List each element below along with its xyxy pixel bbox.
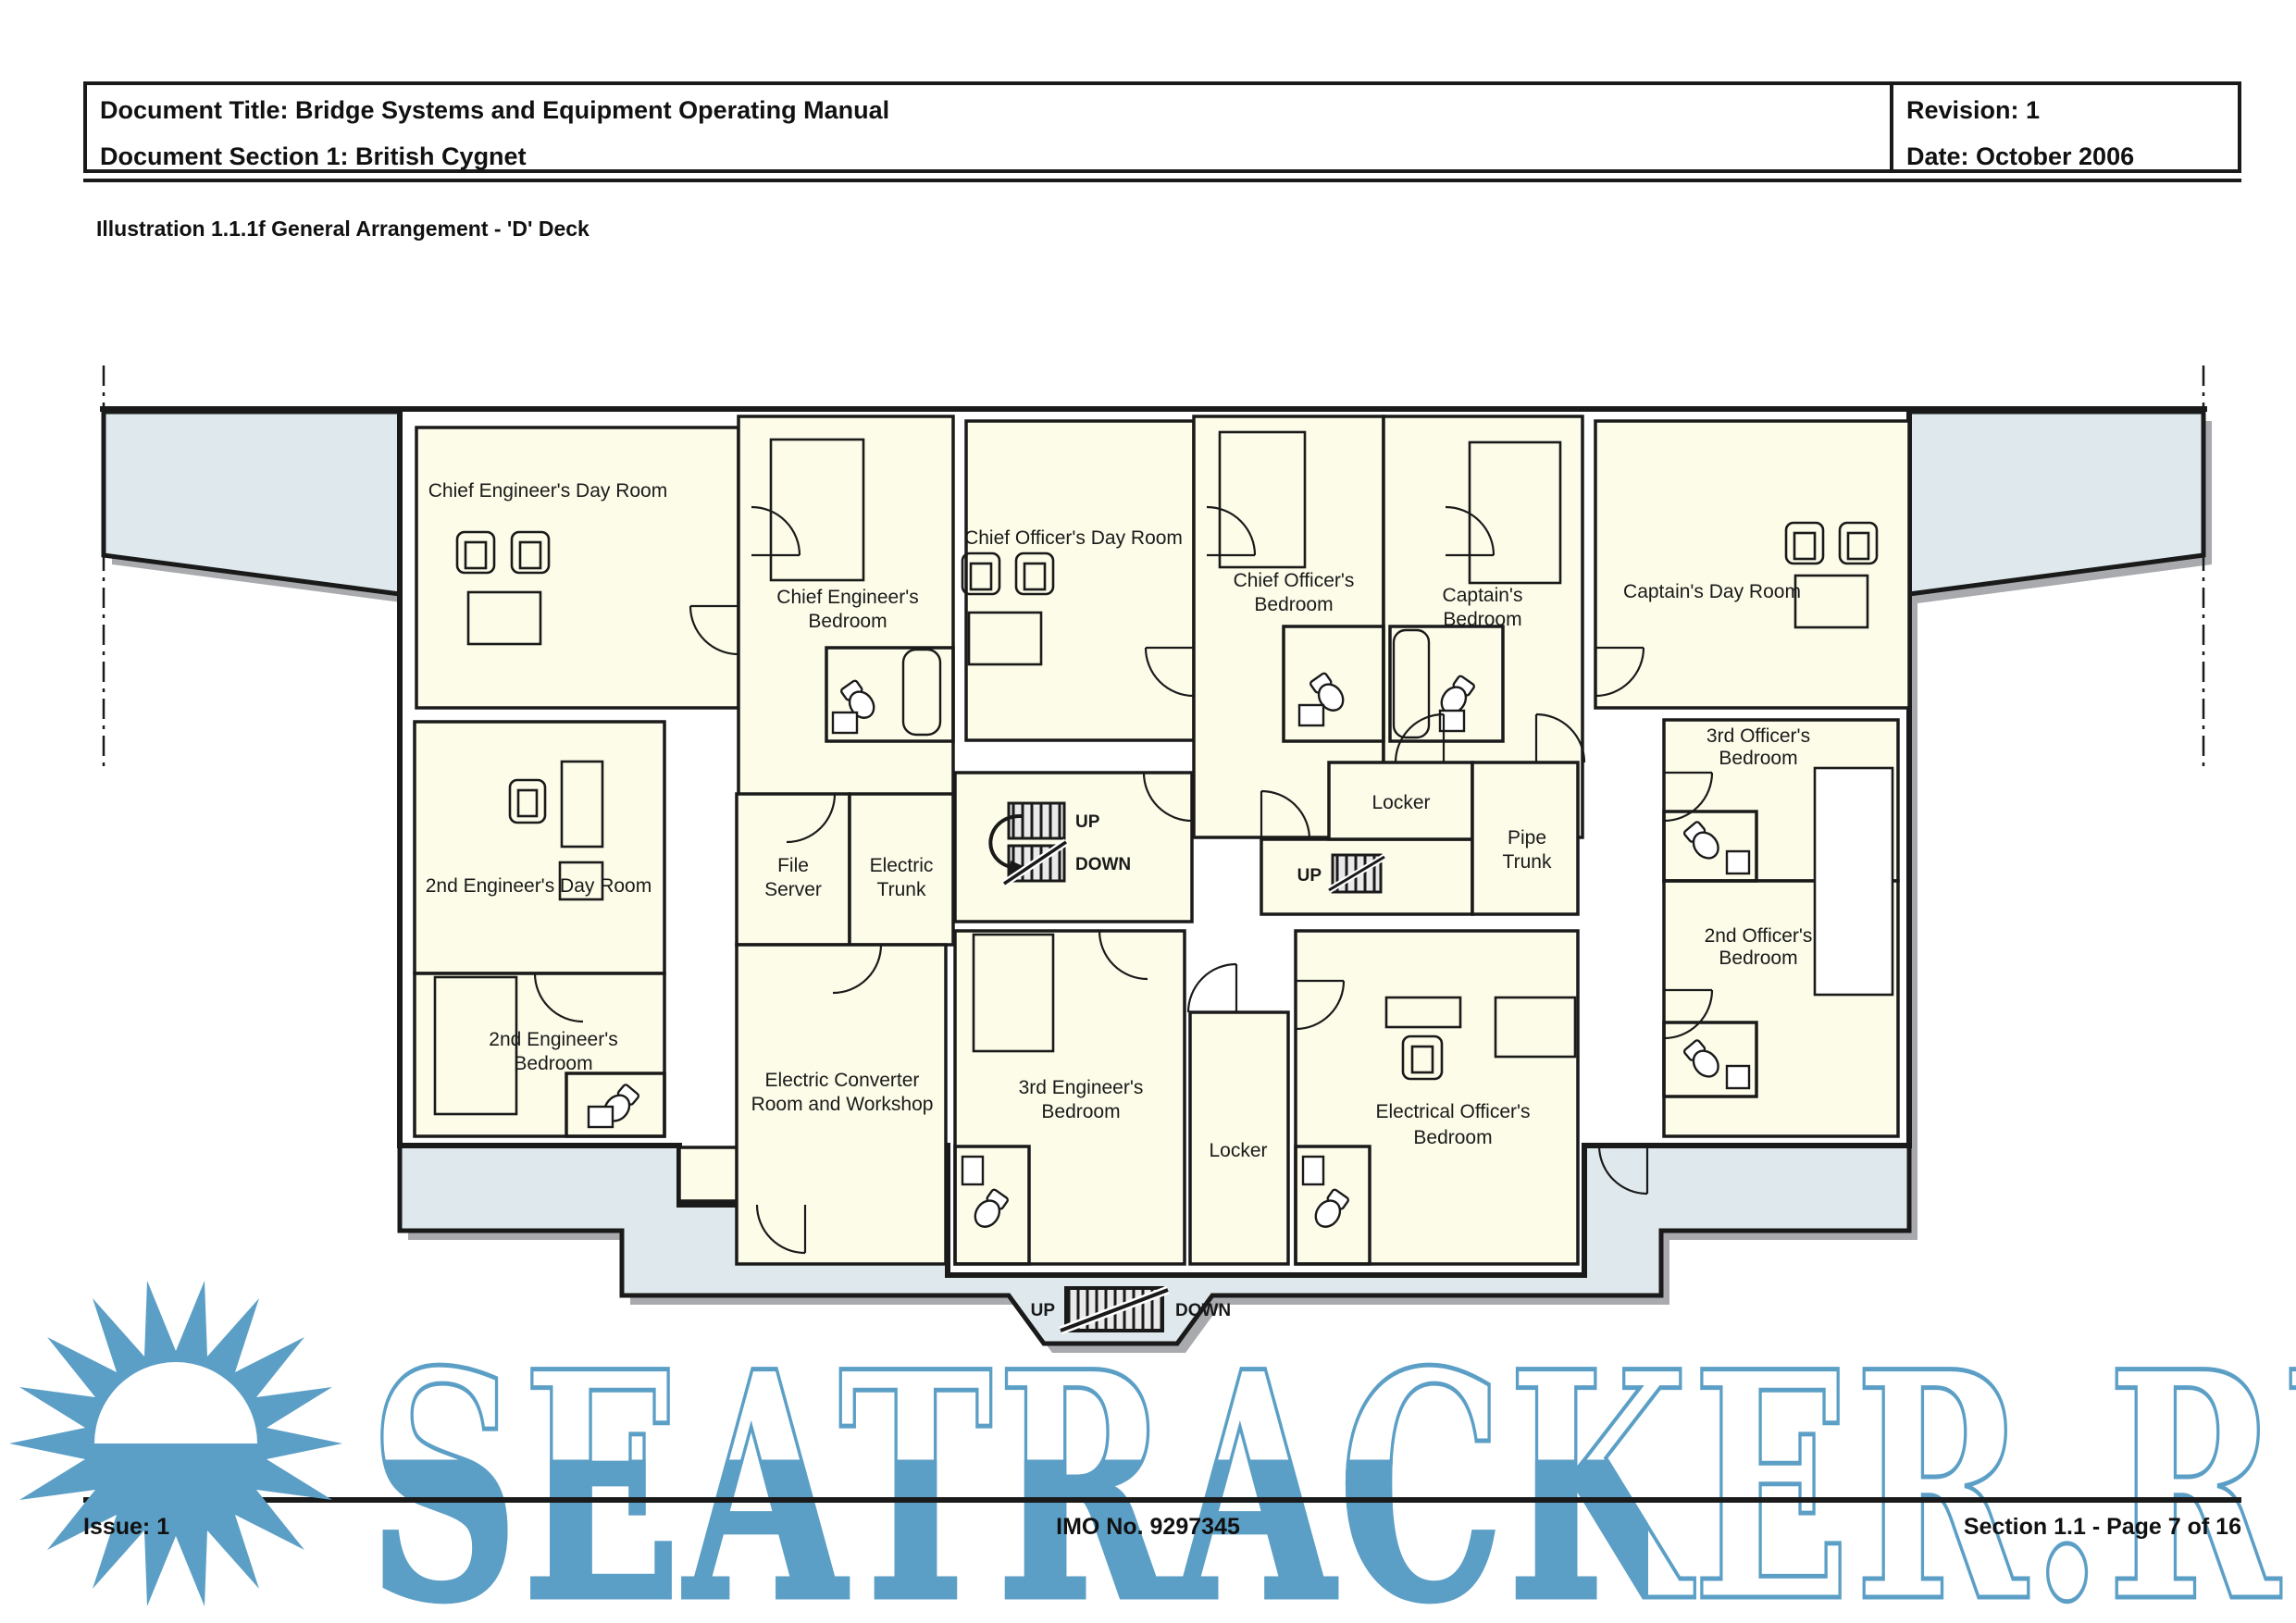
revision: Revision: 1 <box>1906 96 2040 125</box>
header-box: Document Title: Bridge Systems and Equip… <box>83 81 2241 173</box>
document-section: Document Section 1: British Cygnet <box>100 142 527 171</box>
vestibule-stairs-icon <box>1329 855 1384 892</box>
room-label-pipe-trunk-2: Trunk <box>1503 851 1552 873</box>
header-divider <box>1890 85 1893 169</box>
room-label-captains-day-room: Captain's Day Room <box>1623 581 1801 602</box>
watermark-text: SEATRACKER.RU <box>368 1331 1648 1623</box>
watermark-sun-icon <box>0 1268 352 1623</box>
room-label-locker-top: Locker <box>1371 792 1430 813</box>
wardrobe <box>1815 768 1893 995</box>
room-label-third-officers-bedroom: 3rd Officer's <box>1706 725 1810 747</box>
room-label-pipe-trunk: Pipe <box>1508 827 1546 849</box>
header-left-cell: Document Title: Bridge Systems and Equip… <box>100 85 1877 169</box>
stairs-up-label: UP <box>1075 812 1100 832</box>
room-label-electric-trunk: Electric <box>870 855 934 876</box>
room-label-captains-bedroom-2: Bedroom <box>1443 609 1521 630</box>
stairs-down-label: DOWN <box>1075 855 1131 874</box>
sink-icon <box>589 1107 613 1127</box>
room-label-electric-converter: Electric Converter <box>765 1070 920 1091</box>
room-label-chief-officers-bedroom-2: Bedroom <box>1254 594 1333 615</box>
room-label-electrical-officers-bedroom-2: Bedroom <box>1413 1127 1492 1148</box>
sink-icon <box>1727 1066 1749 1088</box>
room-label-file-server: File <box>777 855 809 876</box>
header-right-cell: Revision: 1 Date: October 2006 <box>1906 85 2230 169</box>
room-label-second-officers-bedroom: 2nd Officer's <box>1705 925 1813 947</box>
room-label-third-engineers-bedroom: 3rd Engineer's <box>1019 1077 1144 1098</box>
room-second-engineers-day-room <box>415 722 664 973</box>
room-label-second-officers-bedroom-2: Bedroom <box>1719 948 1797 969</box>
illustration-title: Illustration 1.1.1f General Arrangement … <box>96 217 590 242</box>
room-label-chief-engineers-bedroom: Chief Engineer's <box>776 587 918 608</box>
room-label-third-engineers-bedroom-2: Bedroom <box>1041 1101 1120 1122</box>
manual-page: Document Title: Bridge Systems and Equip… <box>0 0 2296 1623</box>
room-label-chief-engineers-day-room: Chief Engineer's Day Room <box>428 480 667 502</box>
sink-icon <box>1727 851 1749 873</box>
room-label-electric-trunk-2: Trunk <box>877 879 926 900</box>
document-title: Document Title: Bridge Systems and Equip… <box>100 96 889 125</box>
footer-imo-number: IMO No. 9297345 <box>0 1514 2296 1541</box>
footer-section-page: Section 1.1 - Page 7 of 16 <box>1964 1514 2241 1541</box>
room-label-chief-officers-bedroom: Chief Officer's <box>1234 570 1355 591</box>
room-label-captains-bedroom: Captain's <box>1443 585 1523 606</box>
header-underline <box>83 179 2241 182</box>
vestibule-up-label: UP <box>1297 866 1322 886</box>
room-label-third-officers-bedroom-2: Bedroom <box>1719 748 1797 769</box>
room-label-chief-engineers-bedroom-2: Bedroom <box>808 611 887 632</box>
room-label-electrical-officers-bedroom: Electrical Officer's <box>1376 1101 1531 1122</box>
sink-icon <box>1303 1157 1323 1184</box>
room-locker-bottom <box>1190 1012 1288 1264</box>
room-label-electric-converter-2: Room and Workshop <box>751 1094 934 1115</box>
room-label-second-engineers-day-room: 2nd Engineer's Day Room <box>426 875 652 897</box>
room-label-second-engineers-bedroom: 2nd Engineer's <box>489 1029 617 1050</box>
sink-icon <box>1299 705 1323 725</box>
room-label-chief-officers-day-room: Chief Officer's Day Room <box>964 527 1183 549</box>
room-label-file-server-2: Server <box>764 879 822 900</box>
date: Date: October 2006 <box>1906 142 2134 171</box>
footer-rule <box>83 1497 2241 1503</box>
room-label-locker-bottom: Locker <box>1209 1140 1267 1161</box>
sink-icon <box>962 1157 983 1184</box>
room-label-second-engineers-bedroom-2: Bedroom <box>514 1053 592 1074</box>
sink-icon <box>833 712 857 733</box>
